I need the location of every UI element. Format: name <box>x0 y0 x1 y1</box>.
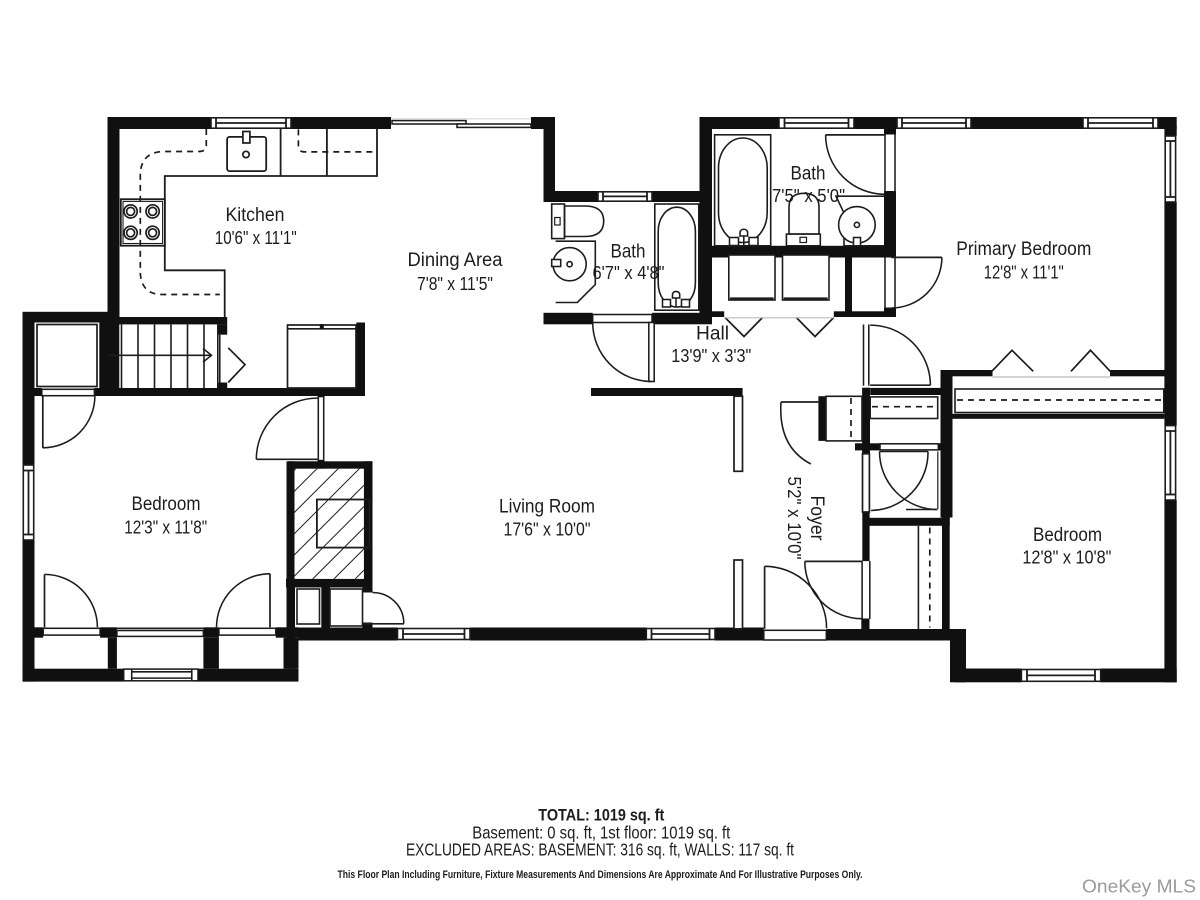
svg-text:Bedroom: Bedroom <box>132 494 201 515</box>
svg-text:Kitchen: Kitchen <box>226 205 285 226</box>
svg-text:This Floor Plan Including Furn: This Floor Plan Including Furniture, Fix… <box>338 869 863 881</box>
svg-text:Primary Bedroom: Primary Bedroom <box>956 239 1091 260</box>
svg-text:EXCLUDED AREAS: BASEMENT: 316: EXCLUDED AREAS: BASEMENT: 316 sq. ft, WA… <box>406 840 794 860</box>
svg-text:Bedroom: Bedroom <box>1033 525 1102 546</box>
svg-text:Bath: Bath <box>611 241 646 262</box>
svg-text:7'5" x 5'0": 7'5" x 5'0" <box>772 185 845 206</box>
svg-text:5'2" x 10'0": 5'2" x 10'0" <box>784 477 805 560</box>
svg-text:17'6" x 10'0": 17'6" x 10'0" <box>504 519 591 540</box>
svg-text:Bath: Bath <box>791 164 826 185</box>
svg-text:12'8" x 10'8": 12'8" x 10'8" <box>1022 547 1111 568</box>
svg-text:10'6" x 11'1": 10'6" x 11'1" <box>215 227 297 248</box>
svg-text:OneKey MLS: OneKey MLS <box>1082 876 1196 897</box>
svg-text:Living Room: Living Room <box>499 496 595 517</box>
svg-text:7'8" x 11'5": 7'8" x 11'5" <box>417 273 493 294</box>
svg-text:13'9" x 3'3": 13'9" x 3'3" <box>671 345 751 366</box>
svg-text:Foyer: Foyer <box>806 496 827 542</box>
svg-text:12'8" x 11'1": 12'8" x 11'1" <box>984 262 1064 283</box>
svg-text:12'3" x 11'8": 12'3" x 11'8" <box>124 517 207 538</box>
svg-text:Dining Area: Dining Area <box>408 250 503 271</box>
svg-text:6'7" x 4'8": 6'7" x 4'8" <box>593 262 665 283</box>
svg-text:Hall: Hall <box>696 323 729 344</box>
